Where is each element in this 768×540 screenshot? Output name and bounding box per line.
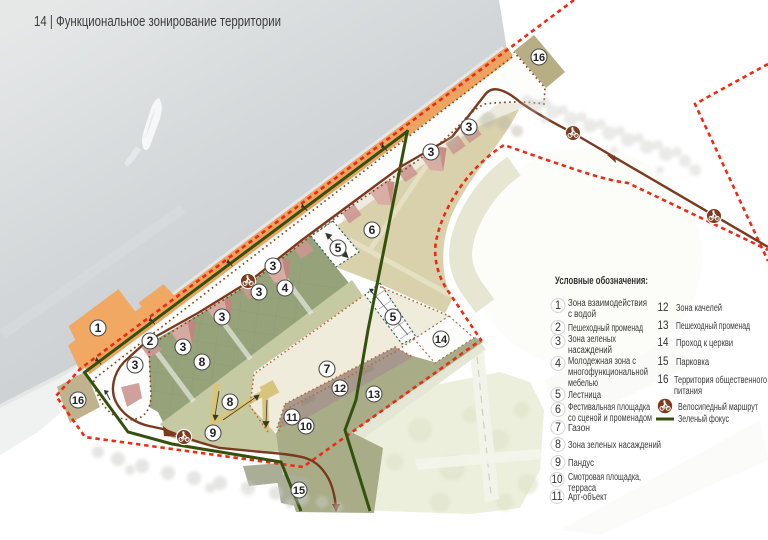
svg-text:Территория общественного: Территория общественного bbox=[674, 374, 767, 386]
svg-text:13: 13 bbox=[368, 389, 380, 401]
svg-text:6: 6 bbox=[555, 404, 561, 416]
svg-text:Лестница: Лестница bbox=[568, 390, 601, 401]
svg-text:1: 1 bbox=[555, 300, 561, 312]
svg-text:Арт-объект: Арт-объект bbox=[568, 491, 607, 503]
svg-text:9: 9 bbox=[210, 426, 217, 440]
svg-text:5: 5 bbox=[555, 389, 561, 401]
svg-text:Зона зеленых насаждений: Зона зеленых насаждений bbox=[568, 440, 661, 451]
svg-text:Условные обозначения:: Условные обозначения: bbox=[555, 275, 648, 287]
svg-text:3: 3 bbox=[555, 336, 561, 348]
svg-text:14: 14 bbox=[435, 334, 448, 346]
svg-text:8: 8 bbox=[555, 439, 561, 451]
svg-text:Проход к церкви: Проход к церкви bbox=[676, 338, 733, 349]
svg-text:Газон: Газон bbox=[568, 423, 590, 434]
svg-text:15: 15 bbox=[658, 356, 669, 368]
svg-text:6: 6 bbox=[369, 223, 376, 237]
svg-text:мебелью: мебелью bbox=[568, 377, 598, 389]
svg-text:14 | Функциональное зонировани: 14 | Функциональное зонирование территор… bbox=[34, 14, 281, 30]
svg-text:Велосипедный маршрут: Велосипедный маршрут bbox=[678, 402, 758, 413]
svg-text:2: 2 bbox=[147, 334, 154, 348]
svg-text:14: 14 bbox=[658, 337, 670, 349]
svg-text:3: 3 bbox=[132, 358, 139, 372]
svg-text:3: 3 bbox=[270, 259, 277, 273]
svg-text:3: 3 bbox=[180, 340, 187, 354]
svg-text:3: 3 bbox=[428, 145, 435, 159]
svg-text:10: 10 bbox=[552, 474, 563, 486]
svg-text:Пешеходный променад: Пешеходный променад bbox=[568, 323, 643, 334]
svg-text:Зеленый фокус: Зеленый фокус bbox=[678, 413, 729, 425]
svg-text:многофункциональной: многофункциональной bbox=[568, 366, 648, 378]
svg-text:16: 16 bbox=[658, 374, 669, 386]
svg-text:11: 11 bbox=[286, 412, 298, 424]
svg-text:Пандус: Пандус bbox=[568, 458, 594, 469]
svg-text:4: 4 bbox=[282, 281, 289, 295]
svg-text:11: 11 bbox=[552, 491, 563, 503]
svg-text:8: 8 bbox=[199, 355, 206, 369]
svg-text:2: 2 bbox=[555, 322, 561, 334]
svg-text:10: 10 bbox=[300, 421, 312, 433]
svg-text:Молодежная зона с: Молодежная зона с bbox=[568, 356, 636, 367]
svg-text:насаждений: насаждений bbox=[568, 345, 612, 356]
svg-text:Пешеходный променад: Пешеходный променад bbox=[676, 321, 750, 332]
svg-text:16: 16 bbox=[72, 395, 84, 407]
svg-text:Фестивальная площадка: Фестивальная площадка bbox=[568, 402, 650, 413]
svg-text:12: 12 bbox=[334, 383, 346, 395]
svg-text:7: 7 bbox=[555, 422, 561, 434]
svg-text:4: 4 bbox=[555, 358, 562, 370]
svg-text:питания: питания bbox=[674, 386, 702, 397]
svg-text:Зона взаимодействия: Зона взаимодействия bbox=[568, 298, 647, 309]
svg-text:3: 3 bbox=[466, 120, 473, 134]
svg-text:5: 5 bbox=[335, 241, 342, 255]
svg-text:5: 5 bbox=[390, 310, 397, 324]
svg-text:Смотровая площадка,: Смотровая площадка, bbox=[568, 472, 641, 483]
svg-text:9: 9 bbox=[555, 457, 561, 469]
svg-text:с водой: с водой bbox=[568, 309, 596, 320]
svg-text:3: 3 bbox=[219, 310, 226, 324]
svg-text:16: 16 bbox=[533, 52, 545, 64]
svg-text:Зона качелей: Зона качелей bbox=[676, 303, 722, 314]
svg-text:12: 12 bbox=[658, 302, 669, 314]
svg-text:8: 8 bbox=[227, 395, 234, 409]
svg-text:3: 3 bbox=[256, 285, 263, 299]
svg-text:7: 7 bbox=[324, 362, 331, 376]
svg-text:15: 15 bbox=[293, 485, 305, 497]
svg-text:Парковка: Парковка bbox=[676, 357, 709, 368]
svg-text:1: 1 bbox=[95, 321, 102, 335]
svg-text:Зона зеленых: Зона зеленых bbox=[568, 334, 616, 345]
svg-text:13: 13 bbox=[658, 320, 669, 332]
